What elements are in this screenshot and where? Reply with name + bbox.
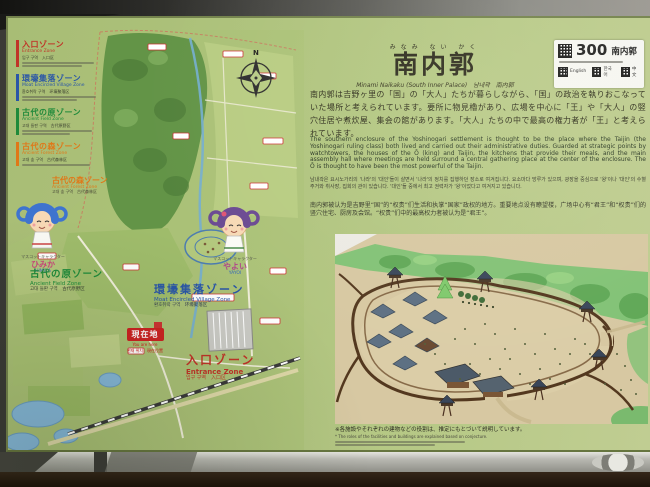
qr-lang-english-label: English	[570, 69, 586, 74]
legend-entrance-zone: 入口ゾーン Entrance Zone 입구 구역 入口区	[16, 40, 110, 67]
description-panel: みなみ ない かく 南内郭 Minami Naikaku (South Inne…	[304, 18, 650, 450]
legend-field-jp: 古代の原ゾーン	[22, 108, 110, 117]
field-zone-krcn: 고대 들판 구역 古代原野区	[30, 287, 130, 292]
yayoi-name: やよい	[206, 262, 264, 271]
legend-description-line	[22, 130, 92, 132]
caption-japanese: ※各施設やそれぞれの建物などの役割は、推定にもとづいて説明しています。	[335, 427, 635, 434]
enclosure-illustration	[335, 234, 648, 424]
entrance-zone-jp: 入口ゾーン	[186, 354, 286, 368]
qr-lang-chinese-label: 中文	[632, 66, 640, 78]
village-zone-jp: 環壕集落ゾーン	[154, 284, 284, 297]
legend-entrance-jp: 入口ゾーン	[22, 40, 110, 49]
page-title: 南内郭	[310, 51, 560, 79]
map-label-village-zone: 環壕集落ゾーン Moat Encircled Village Zone 환호취락…	[154, 284, 284, 308]
qr-lang-english: English	[558, 67, 586, 77]
current-location-krcn: 현재 위치 現在位置	[110, 348, 180, 353]
qr-code-icon	[558, 67, 568, 77]
legend-forest-krcn: 고대 숲 구역 古代森林区	[22, 157, 110, 162]
forest-zone-krcn: 고대 숲 구역 古代森林区	[52, 190, 132, 195]
reflection-highlight	[592, 454, 644, 471]
frame-shadow	[0, 452, 58, 472]
title-block: みなみ ない かく 南内郭 Minami Naikaku (South Inne…	[310, 42, 560, 89]
village-zone-krcn: 환호취락 구역 环壕聚落区	[154, 303, 284, 308]
current-location-tag: 現在地	[127, 328, 164, 341]
legend-description-line	[22, 164, 90, 166]
sign-frame-rail	[0, 452, 650, 472]
caption-korean-line	[335, 441, 465, 443]
legend-description-line	[22, 62, 94, 64]
map-label-forest-zone: 古代の森ゾーン Ancient Forest Zone 고대 숲 구역 古代森林…	[52, 176, 132, 195]
ground-below-sign	[0, 472, 650, 487]
qr-lang-korean-label: 한국어	[603, 66, 614, 78]
himika-name: ひみか	[14, 260, 72, 269]
yayoi-romaji: YAYOI	[206, 271, 264, 276]
qr-card-url-line	[559, 61, 623, 63]
photo-of-information-sign: 入口ゾーン Entrance Zone 입구 구역 入口区 環壕集落ゾーン Mo…	[0, 0, 650, 487]
qr-code-icon	[592, 67, 601, 77]
paragraph-chinese: 南内郭被认为是吉野里“国”的“权贵”们生活和执掌“国家”政权的地方。重要地点设有…	[310, 202, 646, 218]
qr-lang-korean: 한국어	[592, 66, 614, 78]
legend-field-krcn: 고대 들판 구역 古代原野区	[22, 123, 110, 128]
sign-number: 300	[576, 43, 607, 58]
paragraph-korean: 남내곽은 요시노가리의 '나라'의 '대인'들이 살면서 '나라'의 정치를 집…	[310, 177, 646, 191]
legend-description-line	[22, 99, 77, 101]
current-location-en: You are here	[110, 342, 180, 347]
legend-forest-zone: 古代の森ゾーン Ancient Forest Zone 고대 숲 구역 古代森林…	[16, 142, 110, 166]
map-label-field-zone: 古代の原ゾーン Ancient Field Zone 고대 들판 구역 古代原野…	[30, 270, 130, 292]
legend-village-jp: 環壕集落ゾーン	[22, 74, 110, 83]
caption-english: * The roles of the facilities and buildi…	[335, 434, 635, 439]
map-label-entrance-zone: 入口ゾーン Entrance Zone 입구 구역 入口区	[186, 354, 286, 382]
legend-village-krcn: 환호취락 구역 环壕聚落区	[22, 89, 110, 94]
qr-info-card: 300 南内郭 English 한국어 中文	[554, 40, 644, 88]
qr-code-icon	[621, 67, 630, 77]
qr-lang-chinese: 中文	[621, 66, 640, 78]
legend-field-zone: 古代の原ゾーン Ancient Field Zone 고대 들판 구역 古代原野…	[16, 108, 110, 135]
legend-forest-jp: 古代の森ゾーン	[22, 142, 110, 151]
illustration-caption: ※各施設やそれぞれの建物などの役割は、推定にもとづいて説明しています。 * Th…	[335, 427, 635, 446]
legend-description-line	[22, 65, 82, 67]
sign-board: 入口ゾーン Entrance Zone 입구 구역 入口区 環壕集落ゾーン Mo…	[6, 16, 650, 452]
paragraph-japanese: 南内郭は吉野ヶ里の「国」の「大人」たちが暮らしながら、「国」の政治を執りおこなっ…	[310, 88, 646, 140]
forest-zone-jp: 古代の森ゾーン	[52, 176, 132, 185]
compass-north-label: N	[253, 49, 259, 57]
current-location-marker: 現在地 You are here 현재 위치 現在位置	[110, 322, 180, 353]
qr-code-icon	[558, 44, 572, 58]
sign-number-name: 南内郭	[611, 45, 637, 57]
caption-chinese-line	[335, 444, 435, 446]
paragraph-english: The southern enclosure of the Yoshinogar…	[310, 137, 646, 171]
qr-language-row: English 한국어 中文	[558, 66, 640, 78]
legend-description-line	[22, 96, 96, 98]
legend-entrance-krcn: 입구 구역 入口区	[22, 55, 110, 60]
field-zone-jp: 古代の原ゾーン	[30, 270, 130, 281]
entrance-zone-krcn: 입구 구역 入口区	[186, 376, 286, 382]
legend-description-line	[22, 133, 70, 135]
legend-village-zone: 環壕集落ゾーン Moat Encircled Village Zone 환호취락…	[16, 74, 110, 101]
qr-card-header: 300 南内郭	[558, 43, 640, 58]
park-map: 入口ゾーン Entrance Zone 입구 구역 入口区 環壕集落ゾーン Mo…	[8, 18, 304, 450]
frame-shadow	[105, 452, 197, 472]
mascot-yayoi-label: マスコットキャラクター やよい YAYOI	[206, 256, 264, 276]
